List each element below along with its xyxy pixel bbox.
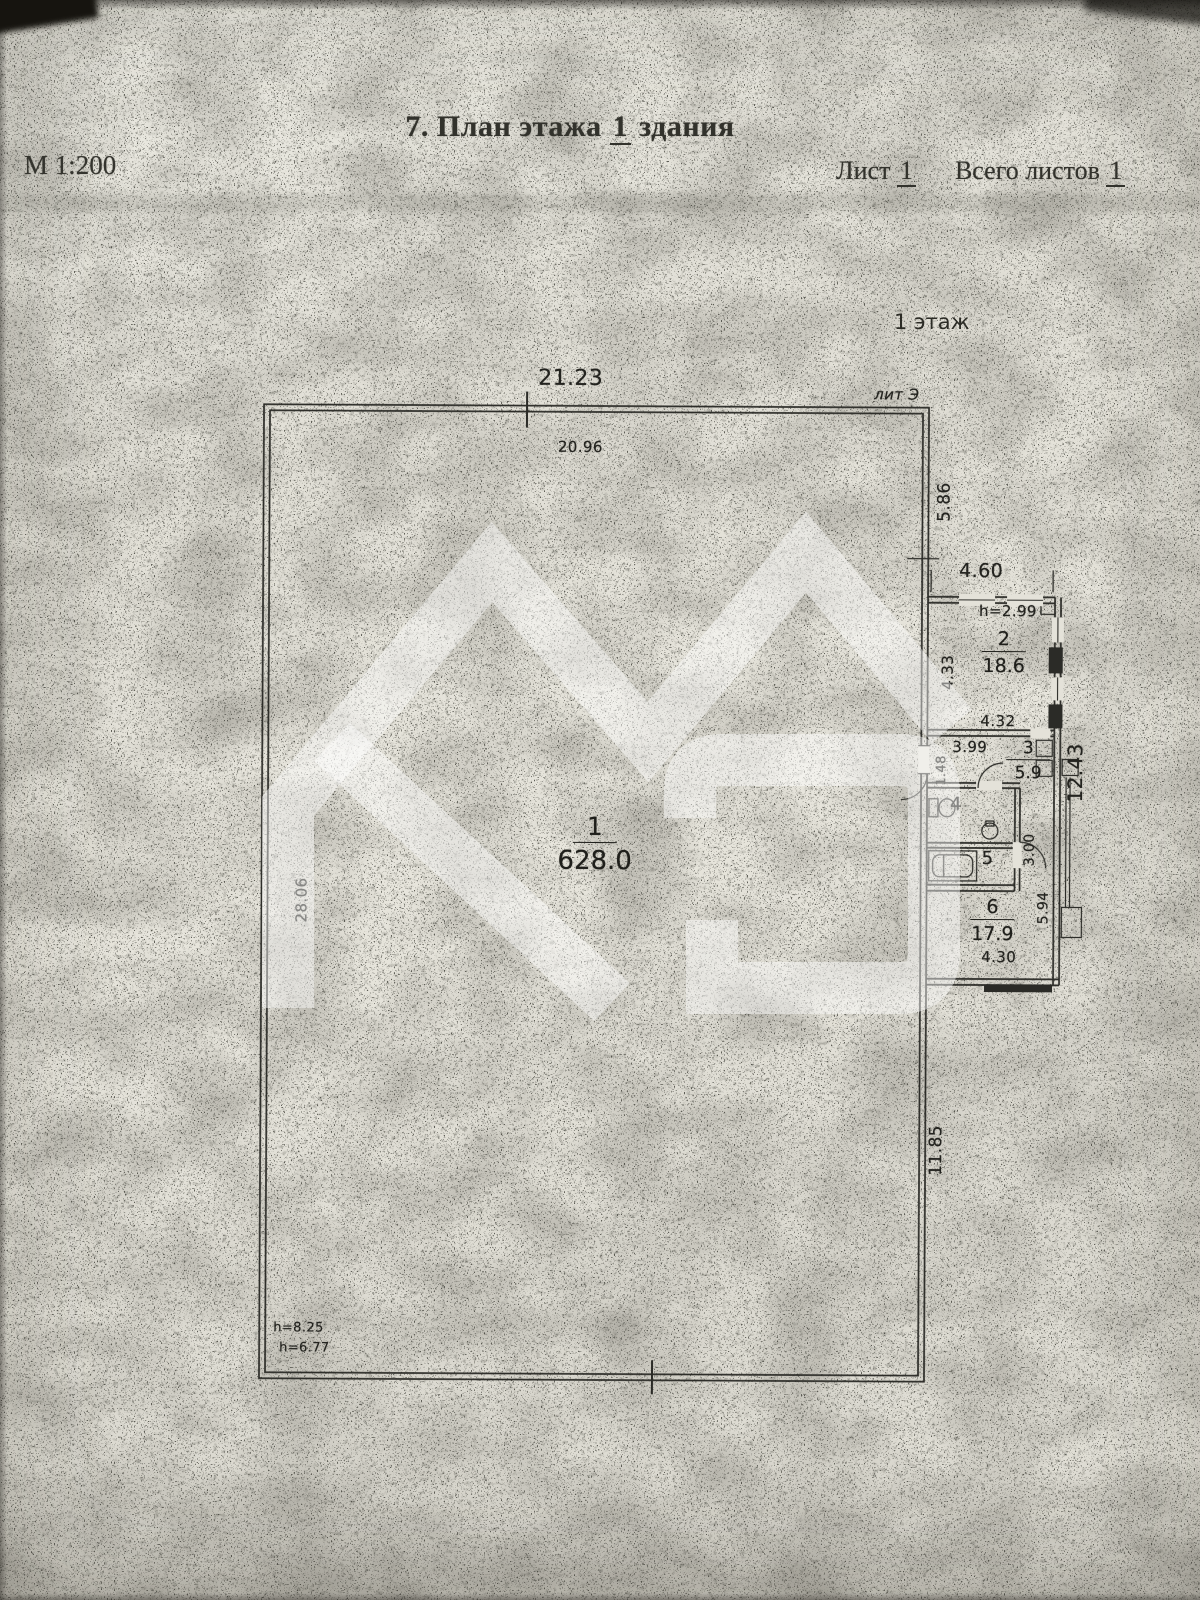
room5-number: 5 — [982, 848, 994, 869]
bathtub-icon — [929, 851, 977, 881]
dimension-ticks — [522, 392, 1054, 1397]
dim-room6-bottom: 4.30 — [981, 948, 1016, 966]
dim-room6-right: 5.94 — [1035, 892, 1051, 925]
sink-icon — [982, 821, 998, 839]
room6-number: 6 — [970, 896, 1014, 920]
dim-annex-right: 12.43 — [1063, 743, 1087, 802]
dim-mid-height: 3.00 — [1022, 833, 1038, 866]
dim-left-inner: 28.06 — [292, 877, 310, 922]
floor-plan-walls — [0, 0, 1200, 1600]
dim-room2-left: 4.33 — [939, 655, 957, 690]
dim-room3-left: 1.48 — [934, 755, 949, 786]
room1-number: 1 — [573, 812, 617, 843]
room1-label: 1 628.0 — [535, 812, 655, 877]
building-liter-label: лит Э — [874, 385, 919, 403]
dim-top-outer: 21.23 — [538, 366, 603, 391]
main-building-walls — [259, 404, 929, 1381]
room2-number: 2 — [982, 628, 1026, 652]
room4-number: 4 — [950, 794, 962, 815]
height-note-a: h=8.25 — [273, 1320, 324, 1335]
room6-label: 6 17.9 — [957, 896, 1027, 945]
height-note-b: h=6.77 — [279, 1340, 330, 1355]
scanned-floor-plan-page: 7. План этажа 1 здания М 1:200 Лист 1 Вс… — [0, 0, 1200, 1600]
dim-right-lower: 11.85 — [926, 1125, 946, 1176]
room3-label: 3 5.9 — [1002, 738, 1054, 783]
floor-plan: 21.23 20.96 лит Э 5.86 4.60 h=2.99 2 18.… — [0, 0, 1200, 1600]
room3-area: 5.9 — [1002, 760, 1054, 783]
dim-right-upper: 5.86 — [934, 482, 954, 522]
dim-top-inner: 20.96 — [558, 438, 603, 456]
room2-area: 18.6 — [969, 652, 1039, 677]
dim-room3-width: 3.99 — [952, 738, 987, 756]
room2-height-note: h=2.99 — [979, 602, 1037, 620]
room2-label: 2 18.6 — [969, 628, 1039, 677]
room3-number: 3 — [1006, 738, 1050, 760]
dim-annex-width: 4.60 — [959, 560, 1003, 582]
room6-area: 17.9 — [957, 920, 1027, 945]
dim-room2-bottom: 4.32 — [980, 712, 1015, 730]
room1-area: 628.0 — [535, 843, 655, 877]
